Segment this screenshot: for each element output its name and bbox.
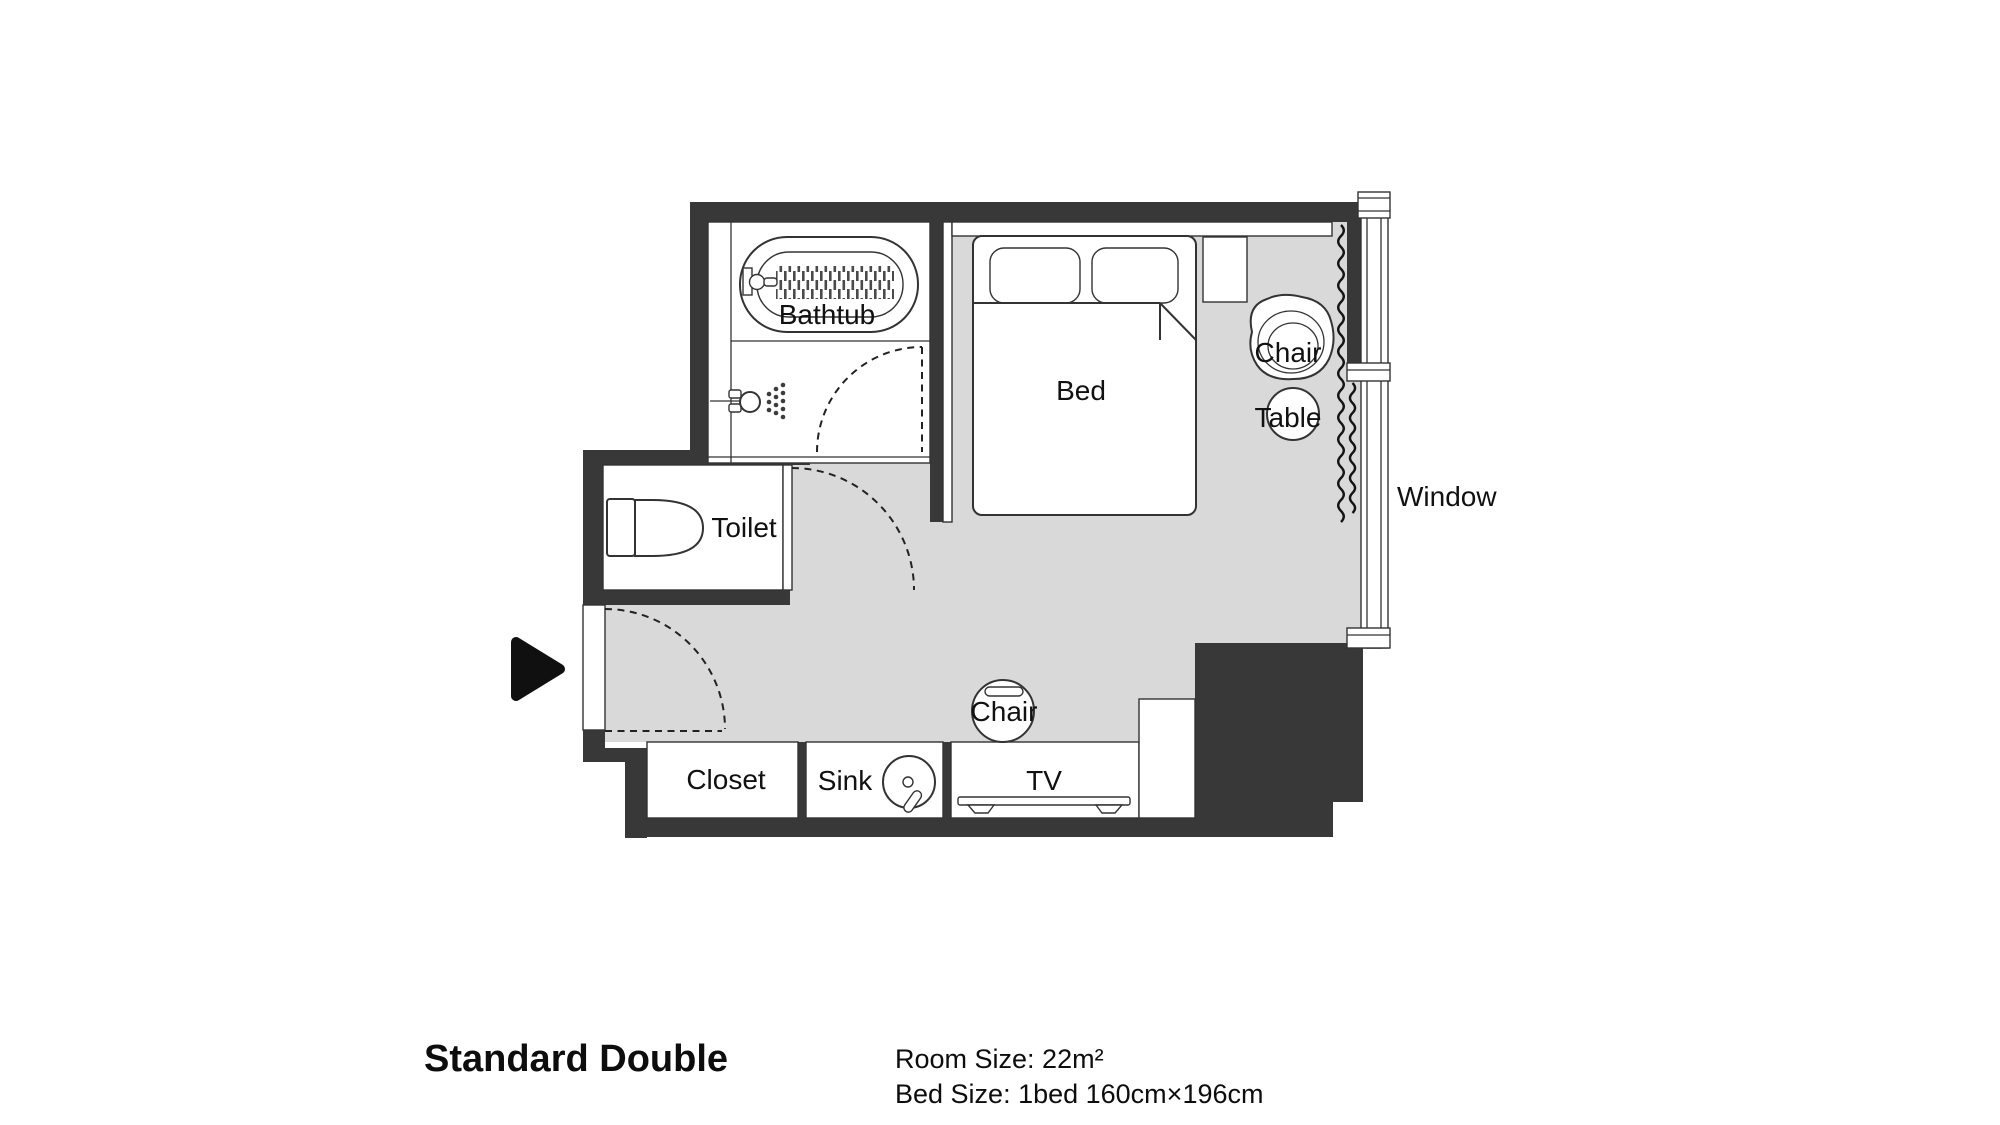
tv-label: TV: [1026, 765, 1062, 797]
floor-plan-page: Bathtub Toilet Bed Chair Table Window Ch…: [0, 0, 2000, 1125]
toilet-icon: [607, 499, 703, 556]
pillow-icon: [990, 248, 1080, 303]
bathtub-label: Bathtub: [779, 299, 876, 331]
pillow-icon: [1092, 248, 1178, 303]
entrance-door: [583, 605, 605, 730]
closet-label: Closet: [686, 764, 765, 796]
room-size-text: Room Size: 22m²: [895, 1044, 1104, 1075]
chair-upper-label: Chair: [1255, 337, 1322, 369]
sink-label: Sink: [818, 765, 872, 797]
wall-face: [943, 222, 952, 522]
bed-label: Bed: [1056, 375, 1106, 407]
floor-plan-drawing: [0, 0, 2000, 1125]
headboard-ledge: [952, 222, 1332, 236]
room-type-title: Standard Double: [424, 1038, 728, 1081]
window-label: Window: [1397, 481, 1497, 513]
bed-size-text: Bed Size: 1bed 160cm×196cm: [895, 1079, 1263, 1110]
corner-pillar: [1195, 643, 1363, 837]
nightstand-icon: [1203, 237, 1247, 302]
bathroom: [708, 222, 930, 463]
table-label: Table: [1255, 402, 1322, 434]
chair-lower-label: Chair: [971, 696, 1038, 728]
toilet-label: Toilet: [711, 512, 776, 544]
entrance-arrow-icon: [516, 642, 560, 696]
side-cabinet: [1139, 699, 1195, 818]
